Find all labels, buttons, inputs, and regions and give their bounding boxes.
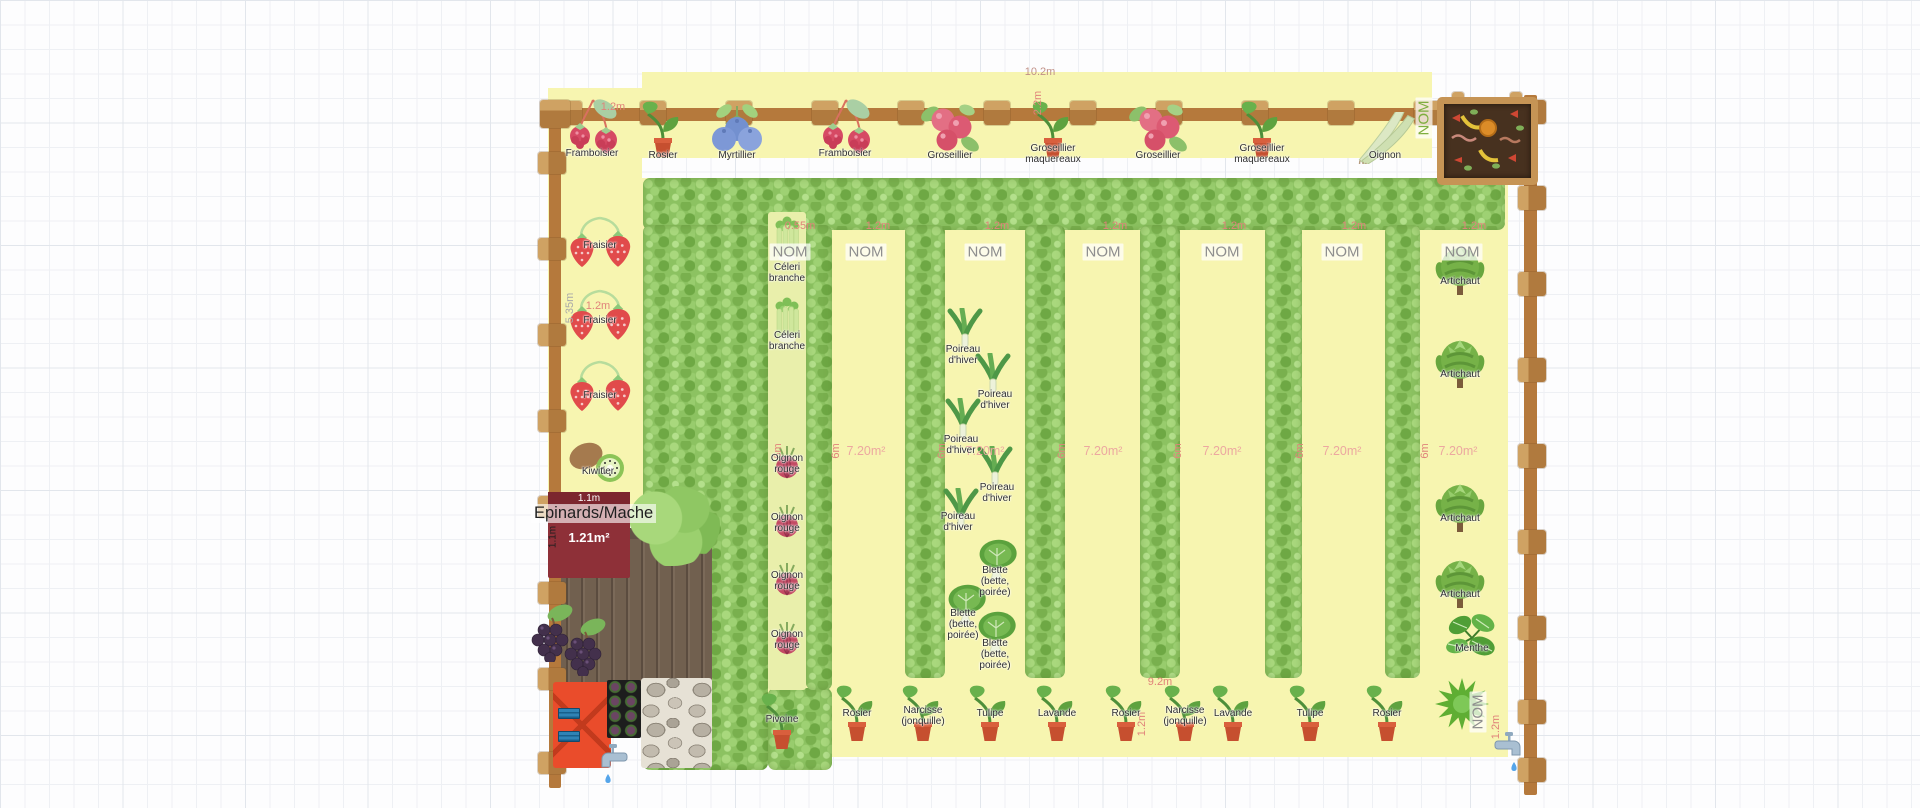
water-tap-icon[interactable] [596,742,630,784]
plant-label: Céleri branche [739,330,835,352]
plant-label: Poireau d'hiver [915,344,1011,366]
kiwi-icon[interactable] [566,436,630,488]
plant-label: Menthe [1424,643,1520,654]
building-window [558,731,580,742]
plant-label: Fraisier [552,315,648,326]
plant-label: Céleri branche [739,262,835,284]
dimension-label: 6m [1294,443,1306,458]
plant-label: Fraisier [552,240,648,251]
epinards-name-label: Epinards/Mache [531,504,656,523]
dimension-label: 1.2m [1462,220,1486,232]
plant-label: Artichaut [1412,369,1508,380]
bed-name-label[interactable]: NOM [1416,98,1433,139]
dimension-label: 1.2m [866,220,890,232]
plant-label: Poireau d'hiver [947,389,1043,411]
dimension-label: 10.2m [1025,66,1056,78]
dimension-label: 1.2m [1103,220,1127,232]
plant-label: Artichaut [1412,276,1508,287]
bed-name-label[interactable]: NOM [1442,244,1483,261]
artichoke-icon[interactable] [1435,480,1485,534]
plant-label: Groseillier maquereaux [1005,143,1101,165]
plant-label: Kiwitier [550,466,646,477]
plant-label: Poireau d'hiver [949,482,1045,504]
dimension-label: 0.55m [785,220,816,232]
dimension-label: 1.2m [586,300,610,312]
plant-label: Groseillier [902,150,998,161]
dimension-label: 7.20m² [1203,444,1242,458]
bed-name-label[interactable]: NOM [1470,692,1487,733]
plant-label: Blette (bette, poirée) [947,638,1043,671]
plant-label: Oignon rouge [739,570,835,592]
fence-post [538,410,566,432]
epinards-height-label: 1.1m [548,526,559,548]
fence-post [1518,530,1546,554]
dimension-label: 1.2m [1490,715,1502,739]
plant-label: Groseillier maquereaux [1214,143,1310,165]
plant-label: Groseillier [1110,150,1206,161]
fence-post [1518,444,1546,468]
building-window [558,708,580,719]
dimension-label: 6m [1172,443,1184,458]
epinards-area-label: 1.21m² [548,530,630,545]
currant-icon[interactable] [1128,100,1188,156]
plant-label: Poireau d'hiver [910,511,1006,533]
dimension-label: 7.20m² [1084,444,1123,458]
plant-label: Blette (bette, poirée) [915,608,1011,641]
garden-planner-canvas[interactable]: NOMNOMNOMNOMNOMNOMNOMNOMNOM10.2m1.2m2.2m… [0,0,1920,808]
fence-post [1518,358,1546,382]
plant-label: Myrtillier [689,150,785,161]
fence-post [1518,186,1546,210]
dimension-label: 1.2m [1222,220,1246,232]
dimension-label: 7.20m² [1323,444,1362,458]
leek-icon[interactable] [947,308,983,348]
plant-label: Framboisier [797,148,893,159]
plant-label: Artichaut [1412,513,1508,524]
bed-name-label[interactable]: NOM [846,244,887,261]
fence-post [1518,272,1546,296]
fence-post [1518,616,1546,640]
bed-name-label[interactable]: NOM [770,244,811,261]
plant-label: Oignon rouge [739,629,835,651]
artichoke-icon[interactable] [1435,336,1485,390]
plant-label: Rosier [1339,708,1435,719]
plant-label: Oignon rouge [739,512,835,534]
plant-label: Oignon rouge [739,453,835,475]
stone-path[interactable] [641,678,712,768]
flower-planter[interactable] [607,680,641,738]
blueberry-icon[interactable] [708,102,766,156]
currant-icon[interactable] [920,100,980,156]
compost-contents-icon [1444,104,1531,178]
dimension-label: 1.2m [985,220,1009,232]
plant-label: Artichaut [1412,589,1508,600]
fence-post [538,582,566,604]
dimension-label: 1.2m [1342,220,1366,232]
hedge-row[interactable] [1385,225,1420,678]
fence-post [1518,700,1546,724]
dimension-label: 6m [1056,443,1068,458]
plant-label: Oignon [1337,150,1433,161]
bed-name-label[interactable]: NOM [965,244,1006,261]
dimension-label: 9.2m [1148,676,1172,688]
plant-label: Fraisier [552,390,648,401]
bed-name-label[interactable]: NOM [1083,244,1124,261]
dimension-label: 7.20m² [847,444,886,458]
strawberry-icon[interactable] [564,356,636,414]
dimension-label: 6m [1419,443,1431,458]
bed-name-label[interactable]: NOM [1202,244,1243,261]
grapes-icon[interactable] [561,618,609,676]
compost-sign[interactable] [1437,97,1538,185]
plant-label: Poireau d'hiver [913,434,1009,456]
fence-post [538,324,566,346]
fence-post [984,101,1010,125]
dimension-label: 7.20m² [1439,444,1478,458]
plant-label: Blette (bette, poirée) [947,565,1043,598]
dimension-label: 1.2m [601,101,625,113]
bed-name-label[interactable]: NOM [1322,244,1363,261]
dimension-label: 2.2m [1032,91,1044,115]
artichoke-icon[interactable] [1435,556,1485,610]
